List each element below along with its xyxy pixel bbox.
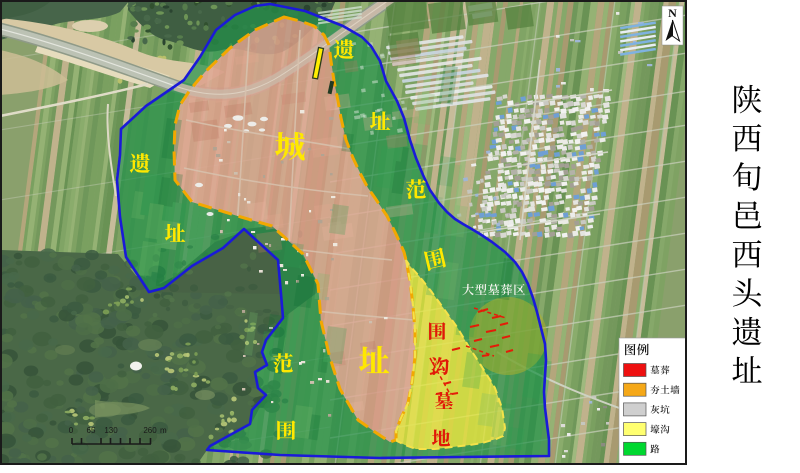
svg-text:260: 260 [143, 426, 157, 435]
svg-text:0: 0 [69, 426, 74, 435]
svg-text:65: 65 [87, 426, 96, 435]
svg-text:N: N [668, 6, 677, 20]
svg-text:m: m [160, 426, 167, 435]
svg-text:130: 130 [104, 426, 118, 435]
